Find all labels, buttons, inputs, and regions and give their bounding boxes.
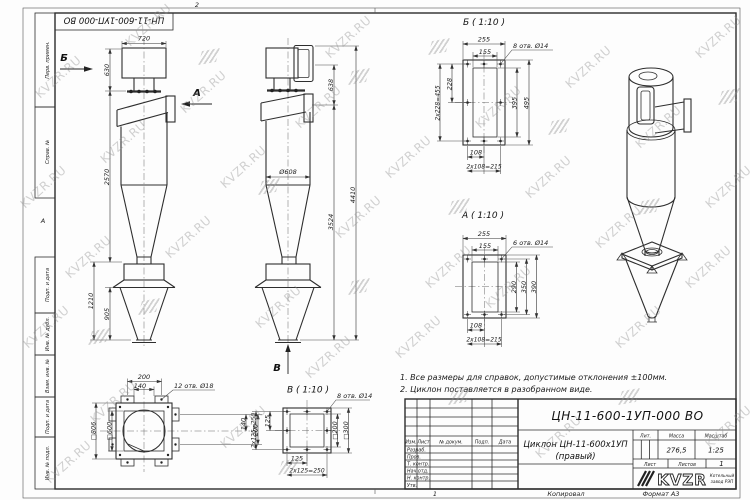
section-a-holes-note: 6 отв. Ø14 <box>513 239 548 247</box>
view-arrow-a-icon <box>181 101 190 107</box>
dim-b-215: 2x108=215 <box>466 164 501 171</box>
dim-b-455: 2x228=455 <box>435 85 442 120</box>
footer-copied-label: Копировал <box>547 490 584 498</box>
dim-front-1210: 1210 <box>87 293 95 310</box>
dim-b-495: 495 <box>523 97 531 109</box>
dim-b-108: 108 <box>470 149 482 157</box>
dim-base-600: □600 <box>106 422 114 441</box>
dim-a-255: 255 <box>478 230 490 238</box>
tb-company-line2: завод РЭП <box>711 479 734 484</box>
dim-b-228: 228 <box>446 78 454 90</box>
view-v-holes-note: 8 отв. Ø14 <box>337 392 372 400</box>
margin-field-2: Подп. и дата <box>45 268 51 302</box>
tb-row-utv: Утв. <box>407 483 417 489</box>
dim-base-806: □806 <box>90 422 98 441</box>
tb-doc-number: ЦН-11-600-1УП-000 ВО <box>551 409 703 423</box>
view-arrow-v-label: В <box>273 363 281 374</box>
dim-a-290: 290 <box>510 281 518 293</box>
drawing-canvas: 2 А Перв. примен. Справ. № Подп. и дата … <box>0 0 750 500</box>
dim-v-125l: 125 <box>264 415 272 427</box>
section-b-holes-note: 8 отв. Ø14 <box>513 42 548 50</box>
tb-sheets-label: Листов <box>677 462 696 468</box>
tb-lit-label: Лит. <box>639 434 651 440</box>
zone-top-label: 2 <box>195 1 199 9</box>
dim-base-200t: 200 <box>138 373 150 381</box>
section-b-title: Б ( 1:10 ) <box>463 18 505 28</box>
section-a-title: А ( 1:10 ) <box>461 211 504 221</box>
title-block: Изм. Лист № докум. Подп. Дата Разраб. Пр… <box>405 399 736 489</box>
dim-a-155: 155 <box>479 242 491 250</box>
tb-logo-text: KVZR <box>657 471 707 489</box>
dim-side-4410: 4410 <box>349 187 357 204</box>
view-arrow-b-label: Б <box>60 53 68 64</box>
base-holes-note: 12 отв. Ø18 <box>174 382 213 390</box>
side-view: Ø608 638 3524 4410 В <box>255 38 359 374</box>
tb-sheet-label: Лист <box>643 462 656 468</box>
margin-field-5: Подп. и дата <box>45 400 51 434</box>
tb-mass-label: Масса <box>669 434 684 440</box>
tb-product-name-2: (правый) <box>555 452 595 462</box>
dim-side-3524: 3524 <box>327 214 335 231</box>
dim-b-255: 255 <box>478 36 490 44</box>
dim-v-250b: 2x125=250 <box>289 468 324 475</box>
tb-row-tkontr: Т. контр. <box>407 461 429 467</box>
tb-col-data: Дата <box>498 440 511 446</box>
front-view: 720 630 2570 1210 905 Б А <box>60 35 212 349</box>
tb-row-nkontr: Н. контр. <box>407 475 430 481</box>
dim-front-2570: 2570 <box>103 169 111 186</box>
footer-format-label: Формат А3 <box>642 490 679 498</box>
top-stamp-text: ЦН-11-600-1УП-000 ВО <box>63 15 164 25</box>
margin-field-1: Справ. № <box>45 140 51 164</box>
dim-b-155: 155 <box>479 48 491 56</box>
notes: 1. Все размеры для справок, допустимые о… <box>400 373 667 394</box>
dim-a-390: 390 <box>530 281 538 293</box>
dim-side-608: Ø608 <box>278 168 297 176</box>
tb-row-nachotd: Нач.отд. <box>407 468 428 474</box>
dim-base-140t: 140 <box>134 382 146 390</box>
kvzr-logo-icon <box>638 471 654 486</box>
zone-left-label: А <box>40 217 45 225</box>
tb-scale-value: 1:25 <box>708 447 724 455</box>
margin-field-4: Взам. инв. № <box>45 359 51 393</box>
base-view: 200 140 12 отв. Ø18 □806 □600 140 200 <box>90 373 263 472</box>
dim-front-905: 905 <box>103 308 111 320</box>
dim-b-395: 395 <box>511 97 519 109</box>
view-v: В ( 1:10 ) 8 отв. Ø14 □200 □300 125 2x12… <box>251 386 373 479</box>
tb-row-razrab: Разраб. <box>407 447 426 453</box>
footer-copy-number: 1 <box>433 490 437 498</box>
dim-side-638: 638 <box>327 79 335 91</box>
dim-front-720: 720 <box>138 35 150 43</box>
view-arrow-b-icon <box>84 66 93 72</box>
dim-v-200: □200 <box>331 421 339 440</box>
view-arrow-a-label: А <box>192 88 201 99</box>
tb-product-name-1: Циклон ЦН-11-600х1УП <box>523 440 628 450</box>
margin-field-0: Перв. примен. <box>45 41 51 79</box>
margin-fields: Перв. примен. Справ. № Подп. и дата Инв.… <box>35 13 55 489</box>
note-2: 2. Циклон поставляется в разобранном вид… <box>400 385 592 394</box>
note-1: 1. Все размеры для справок, допустимые о… <box>400 373 667 382</box>
tb-company-line1: Котельный <box>710 473 735 478</box>
tb-col-list: Лист <box>416 440 429 446</box>
tb-col-izm: Изм. <box>405 440 416 446</box>
drawing-sheet: 2 А Перв. примен. Справ. № Подп. и дата … <box>0 0 750 500</box>
tb-scale-label: Масштаб <box>705 434 728 440</box>
top-stamp: ЦН-11-600-1УП-000 ВО <box>55 13 173 30</box>
dim-a-108: 108 <box>470 322 482 330</box>
tb-col-podp: Подп. <box>475 440 490 446</box>
view-v-title: В ( 1:10 ) <box>287 386 329 396</box>
dim-v-125b: 125 <box>291 455 303 463</box>
dim-a-350: 350 <box>520 281 528 293</box>
tb-row-prov: Пров. <box>407 454 421 460</box>
dim-base-140r: 140 <box>240 418 248 430</box>
dim-base-200r: 200 <box>252 424 260 436</box>
dim-v-300: □300 <box>342 421 350 440</box>
margin-field-6: Инв. № подл. <box>45 446 51 481</box>
isometric-view <box>617 68 691 322</box>
section-b-view: Б ( 1:10 ) 8 отв. Ø14 255 155 228 2x228=… <box>435 18 554 174</box>
tb-col-dokum: № докум. <box>438 440 463 446</box>
margin-field-3: Инв. № дубл. <box>45 317 51 351</box>
view-arrow-v-icon <box>285 344 290 352</box>
section-a-view: А ( 1:10 ) 6 отв. Ø14 255 155 290 350 39… <box>455 211 553 347</box>
tb-mass-value: 276,5 <box>666 447 687 455</box>
tb-sheets-value: 1 <box>719 460 723 468</box>
dim-a-215: 2x108=215 <box>466 337 501 344</box>
sheet-footer: 1 Копировал Формат А3 <box>433 490 680 498</box>
dim-front-630: 630 <box>103 64 111 76</box>
